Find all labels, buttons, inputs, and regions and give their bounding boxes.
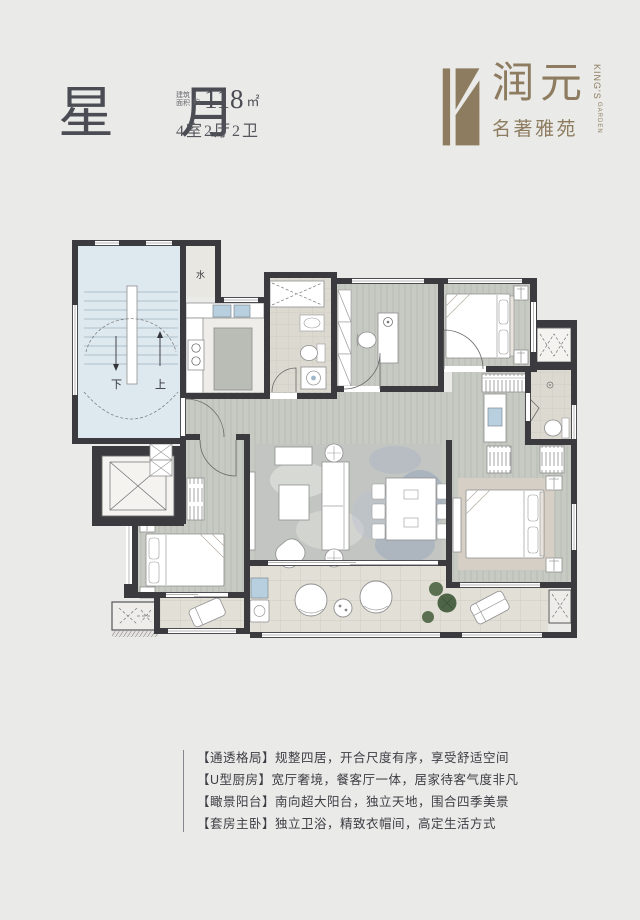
ac-platform [112, 602, 158, 637]
stair-up-label: 上 [155, 378, 166, 391]
coffee-table [279, 485, 309, 520]
kitchen-counter [214, 328, 252, 390]
bedroom3-wardrobe [187, 478, 204, 520]
toilet-1 [301, 346, 318, 361]
master-toilet-tank [562, 418, 569, 438]
feature-item: 【通透格局】规整四居，开合尺度有序，享受舒适空间 [197, 750, 519, 766]
toilet-2 [545, 420, 562, 436]
sideboard [275, 447, 312, 465]
walk-in-closet [482, 374, 527, 392]
master-tv-cabinet [453, 498, 461, 552]
floorplan-page: { "header": { "title": "星 月", "area_pref… [0, 0, 640, 920]
dining-area [372, 478, 450, 540]
ac-platform-right [549, 590, 571, 623]
stair-rail [127, 286, 137, 384]
feature-item: 【套房主卧】独立卫浴，精致衣帽间，高定生活方式 [197, 816, 519, 832]
feature-item: 【瞰景阳台】南向超大阳台，独立天地，围合四季美景 [197, 794, 519, 810]
feature-list: 【通透格局】规整四居，开合尺度有序，享受舒适空间 【U型厨房】宽厅奢境，餐客厅一… [183, 750, 519, 832]
kitchen [186, 303, 264, 393]
stair-down-label: 下 [111, 379, 122, 391]
balcony-sink [251, 578, 268, 598]
side-table [334, 599, 352, 617]
desk [378, 313, 398, 363]
master-wardrobe [540, 446, 564, 473]
dining-table [386, 478, 436, 540]
dining-chair [372, 524, 385, 539]
master-wardrobe [487, 446, 511, 473]
kitchen-sink [213, 305, 231, 317]
round-chair [360, 581, 392, 613]
shoe-cabinet [150, 444, 172, 476]
balcony-washer [250, 600, 269, 622]
plant [422, 611, 434, 623]
dining-chair [372, 504, 385, 519]
dining-chair [372, 484, 385, 499]
bath1-basin [300, 315, 324, 331]
round-chair [295, 584, 327, 616]
water-closet-label: 水 [196, 269, 205, 280]
toilet-tank [317, 344, 325, 362]
feature-item: 【U型厨房】宽厅奢境，餐客厅一体，居家待客气度非凡 [197, 772, 519, 788]
plant [429, 582, 443, 596]
desk-chair [358, 332, 376, 348]
